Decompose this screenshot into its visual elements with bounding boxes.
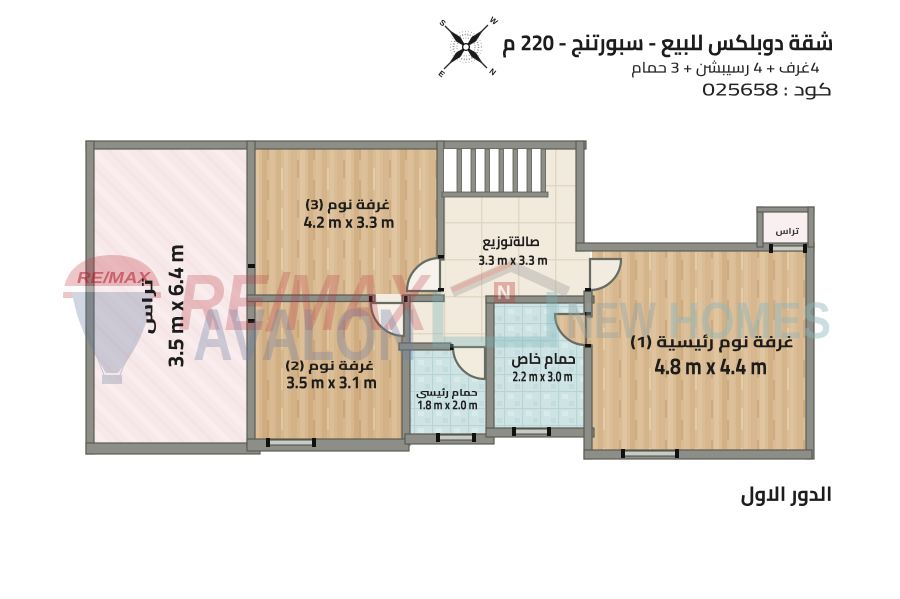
svg-text:N: N [487,67,497,78]
svg-text:AVALON: AVALON [193,295,417,376]
svg-text:HOMES: HOMES [668,292,831,349]
svg-text:RE/MAX: RE/MAX [77,270,152,287]
svg-text:E: E [437,69,447,80]
svg-text:N: N [497,283,511,304]
svg-text:W: W [488,15,500,27]
